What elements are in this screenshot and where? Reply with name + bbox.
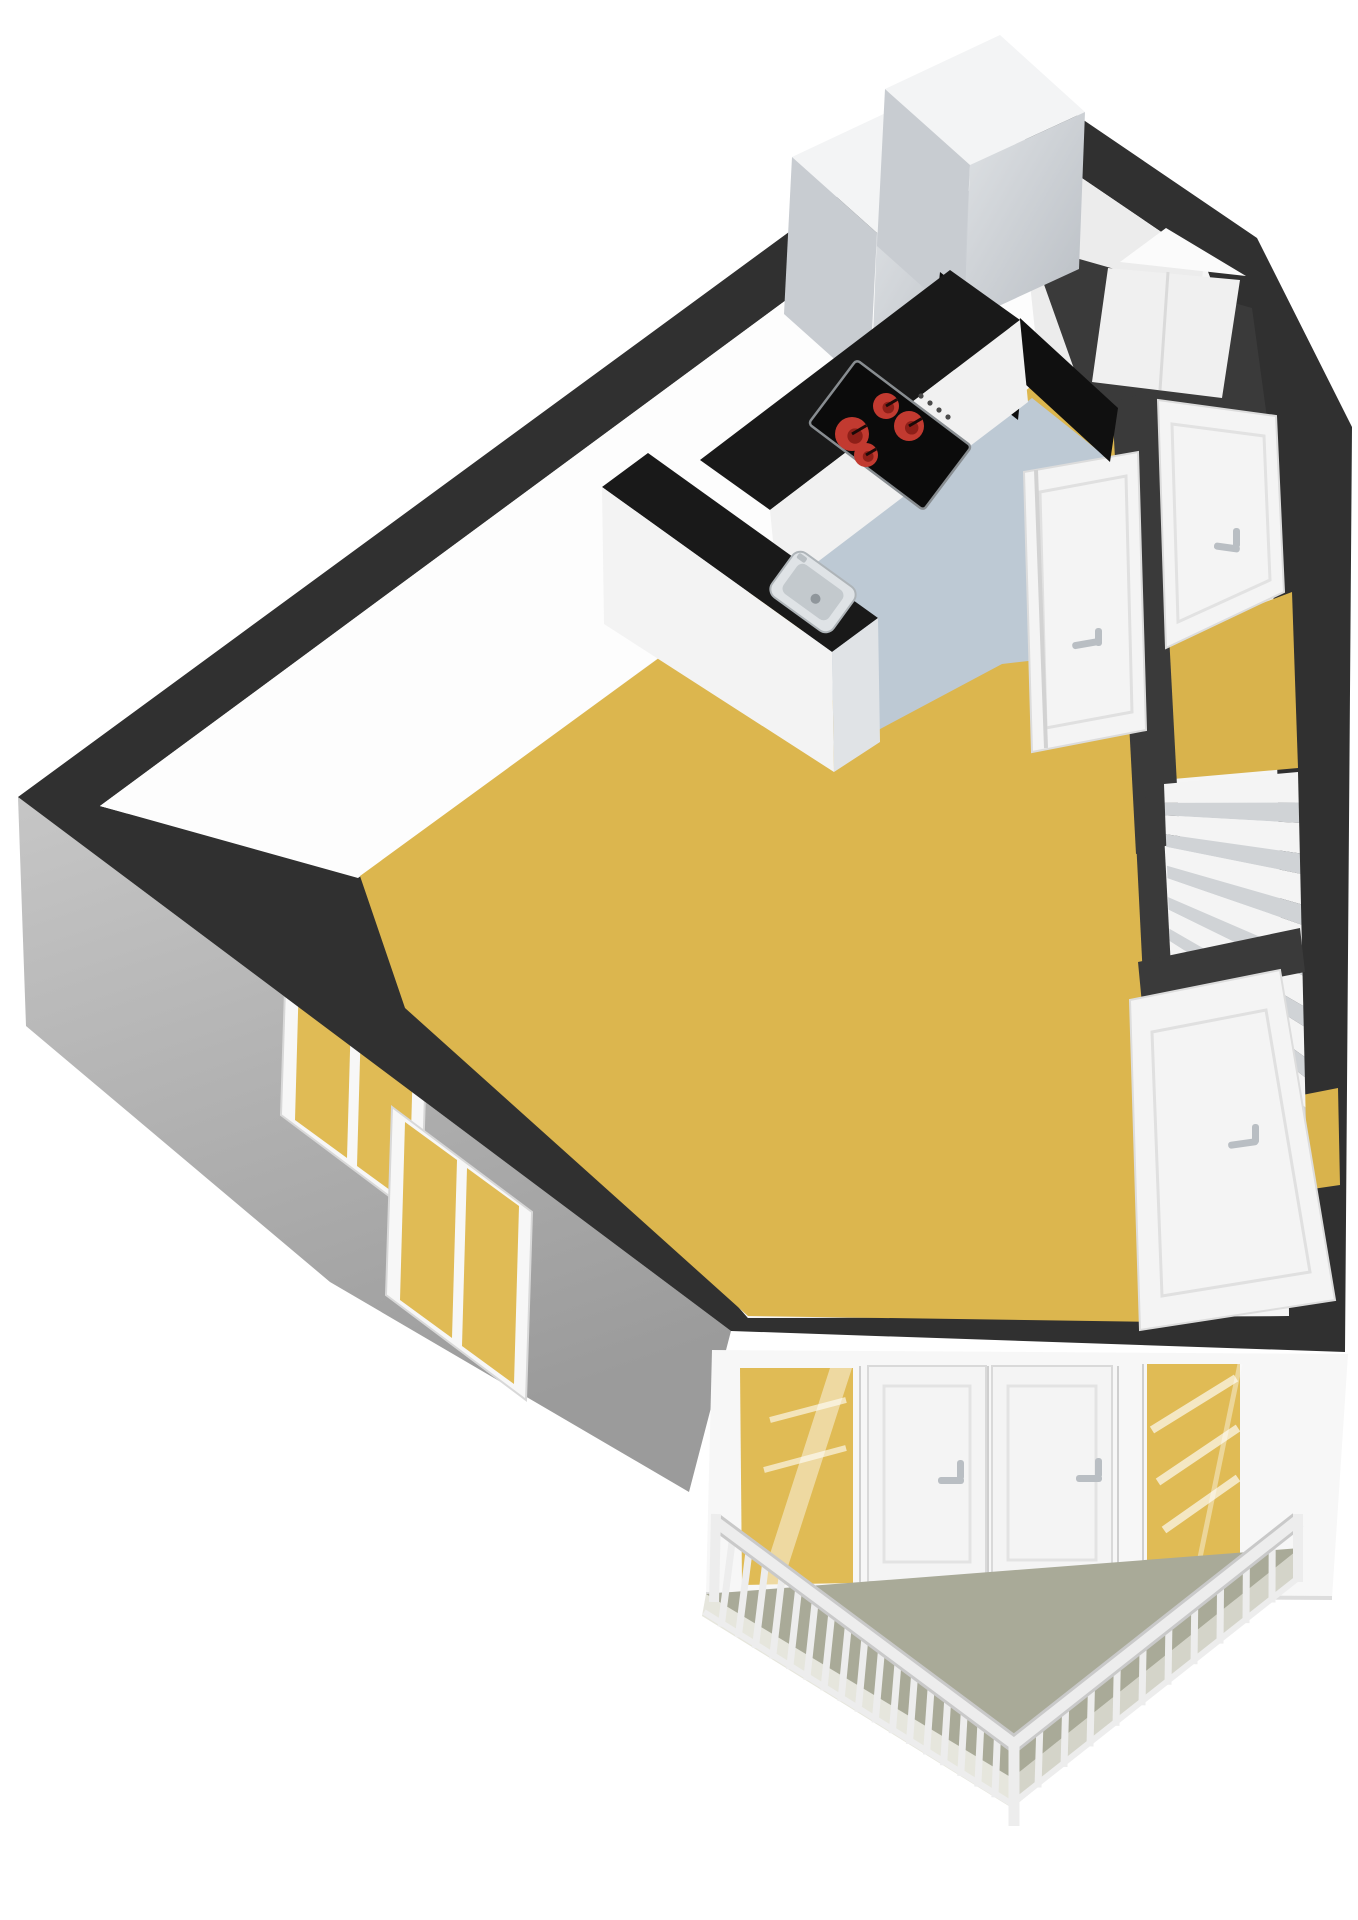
picket-right-run xyxy=(1142,1646,1143,1705)
cooktop-knob xyxy=(927,400,932,405)
balcony-door-1 xyxy=(868,1366,986,1582)
picket-right-run xyxy=(1194,1605,1195,1664)
picket-right-run xyxy=(1090,1687,1091,1746)
picket-left-run xyxy=(944,1699,948,1766)
picket-right-run xyxy=(1116,1667,1117,1726)
kitchen-door xyxy=(1024,452,1146,752)
cooktop-knob xyxy=(945,414,950,419)
picket-left-run xyxy=(978,1723,981,1786)
glass-panel-right xyxy=(1147,1364,1240,1577)
window-2-pane-left xyxy=(400,1122,457,1338)
picket-left-run xyxy=(961,1711,965,1776)
picket-right-run xyxy=(1220,1585,1221,1644)
floorplan-3d-svg xyxy=(0,0,1358,1920)
picket-right-run xyxy=(1064,1707,1066,1767)
picket-left-run xyxy=(926,1686,931,1754)
balcony-door-2 xyxy=(992,1366,1112,1580)
floorplan-canvas xyxy=(0,0,1358,1920)
railing-post-left xyxy=(714,1514,716,1602)
picket-right-run xyxy=(1168,1626,1169,1685)
window-2-pane-right xyxy=(462,1168,519,1384)
picket-left-run xyxy=(995,1736,998,1798)
cooktop-knob xyxy=(936,407,941,412)
cooktop-knob xyxy=(918,393,923,398)
